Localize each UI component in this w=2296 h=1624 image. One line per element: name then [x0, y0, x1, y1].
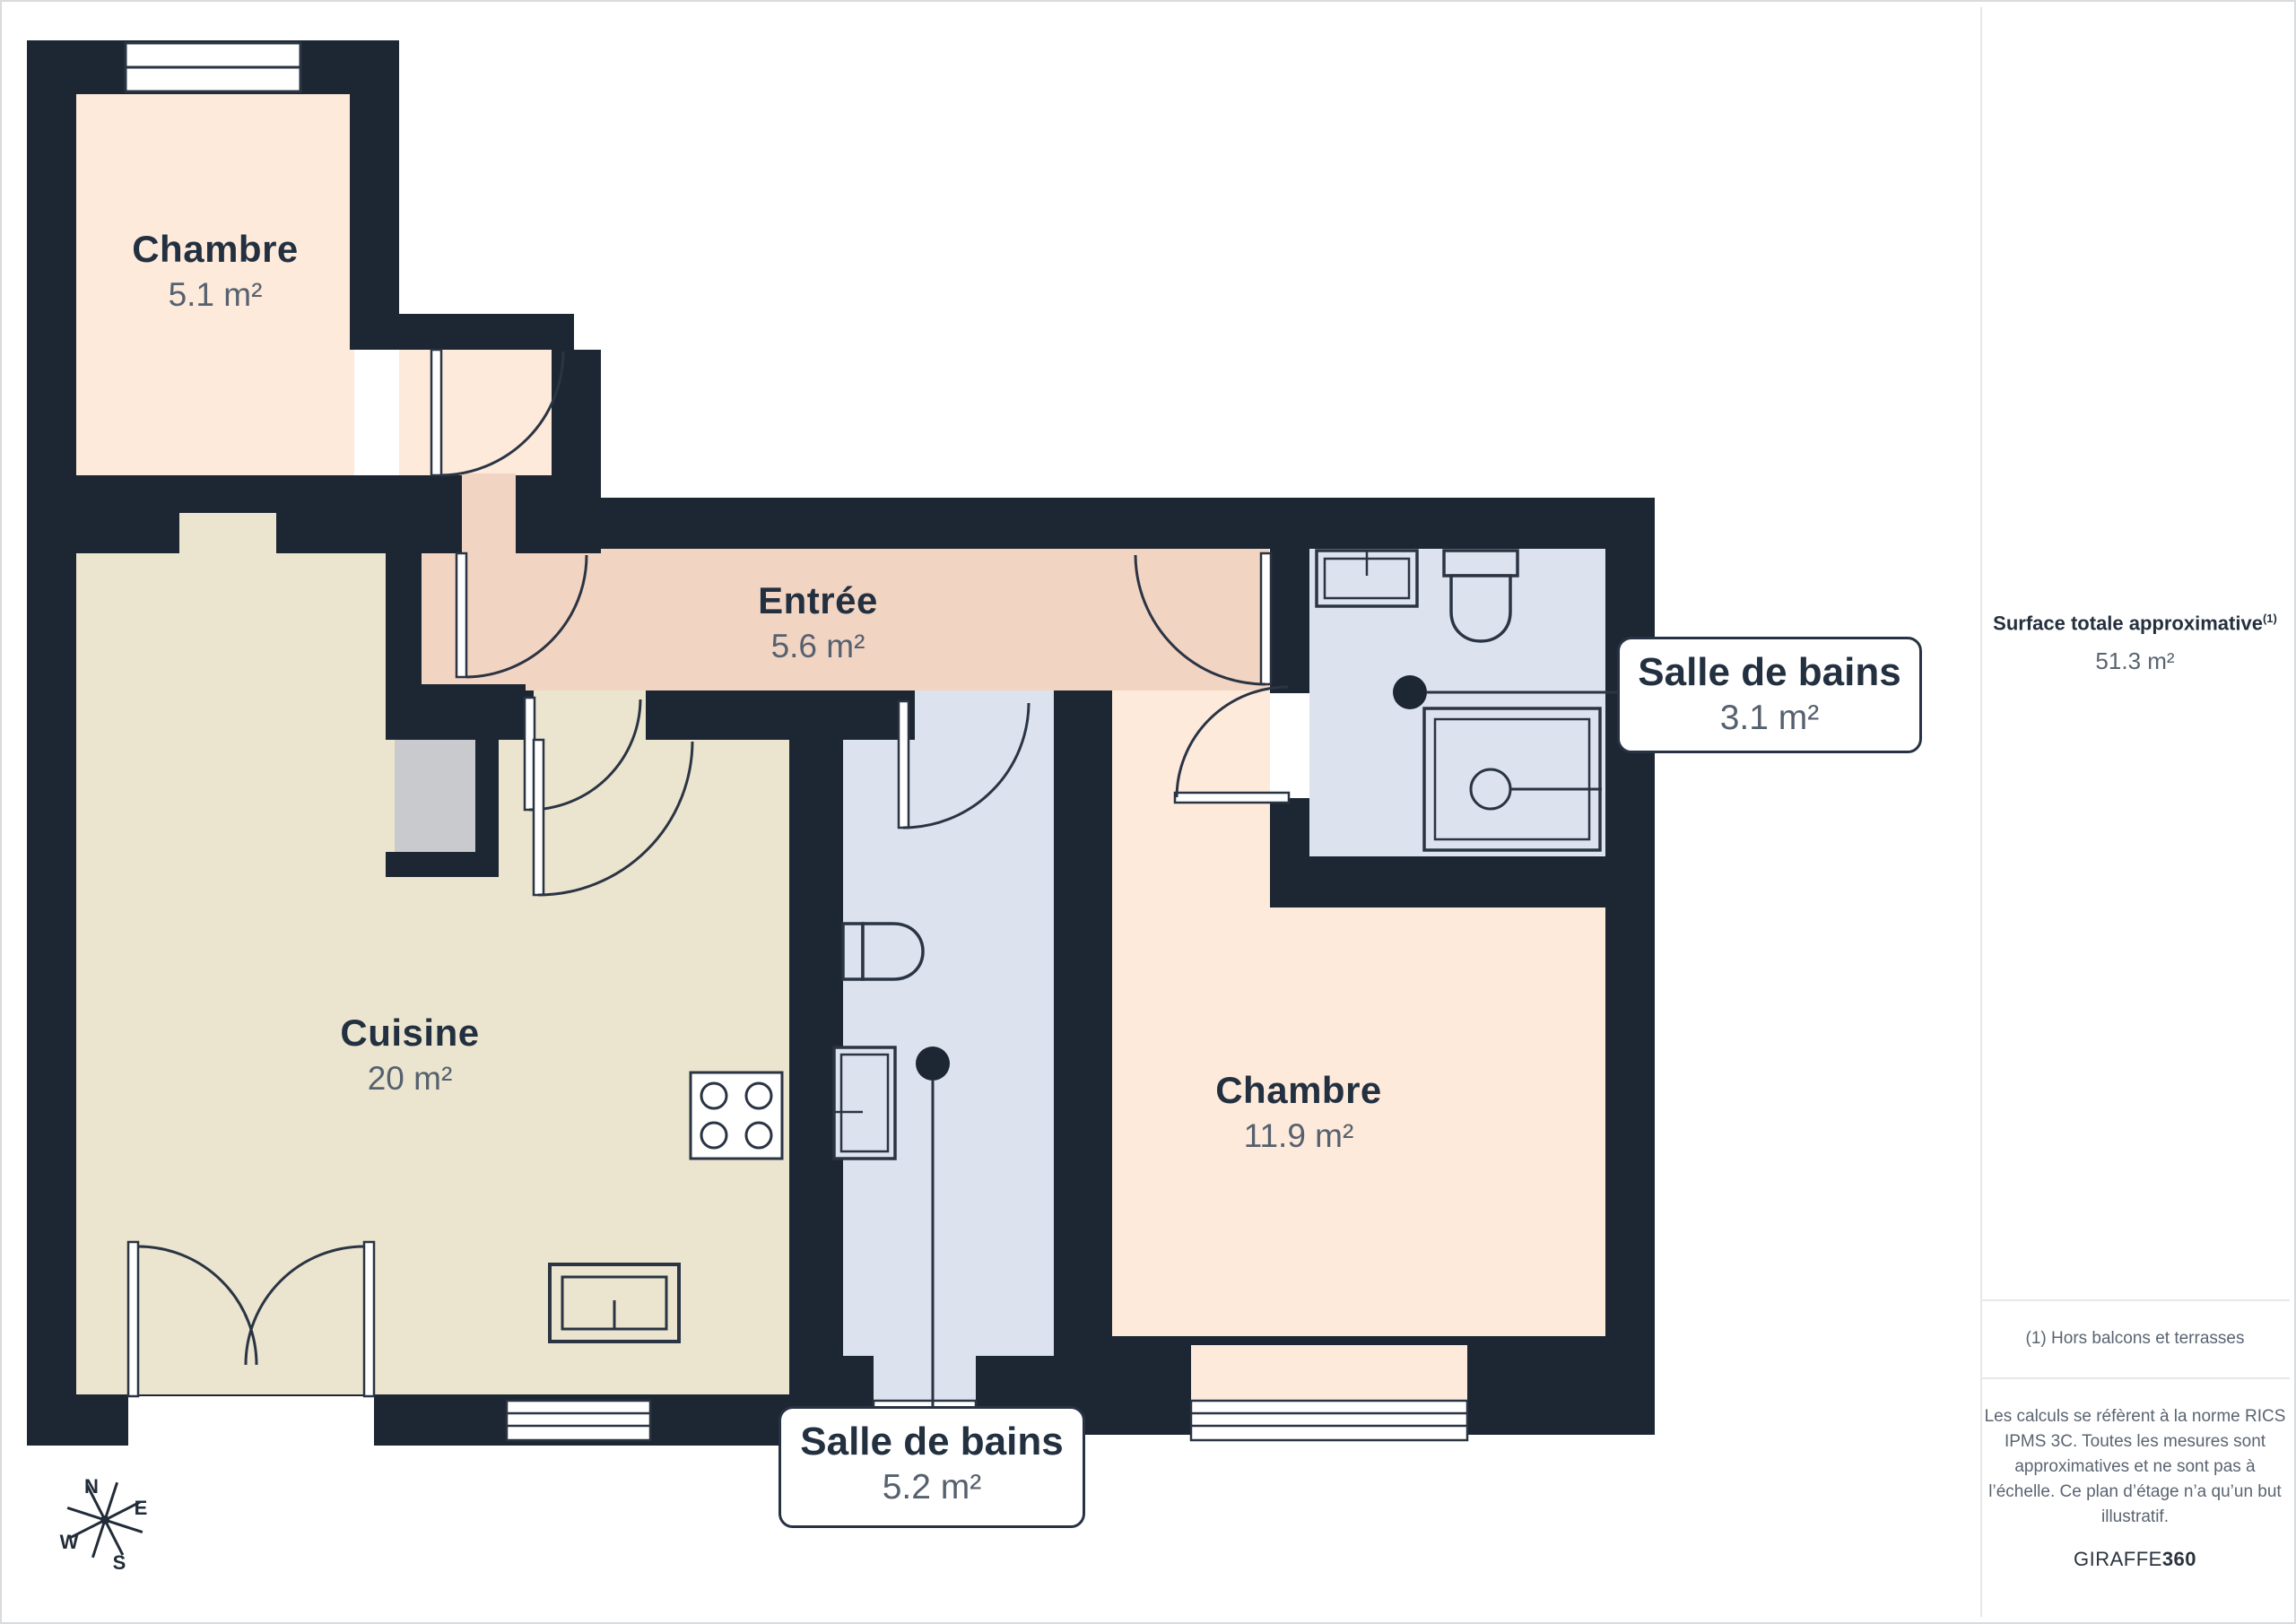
french-door-opening [128, 1396, 374, 1446]
bathroom2-floor [843, 690, 1054, 1356]
leader-dot [916, 1046, 950, 1081]
room-name: Chambre [1215, 1069, 1382, 1112]
bathroom-sink-icon [1317, 551, 1417, 606]
compass-north-label: N [84, 1475, 99, 1498]
room-area: 5.6 m² [758, 628, 878, 665]
surface-total-label: Surface totale approximative(1) [1980, 612, 2290, 635]
room-area: 5.1 m² [132, 276, 299, 314]
footnote-text: (1) Hors balcons et terrasses [1980, 1329, 2290, 1349]
bedroom1-window [126, 43, 300, 91]
brand-name: GIRAFFE [2074, 1548, 2162, 1570]
floorplan-drawing: N E S W [0, 0, 2296, 1624]
callout-name: Salle de bains [1620, 650, 1919, 695]
stove-icon [691, 1073, 782, 1159]
surface-total-value: 51.3 m² [1980, 647, 2290, 675]
room-label-bedroom2: Chambre 11.9 m² [1215, 1069, 1382, 1155]
bathroom2-sill [874, 1356, 976, 1401]
shower-icon [1424, 708, 1602, 850]
leader-dot [1393, 675, 1427, 709]
brand-suffix: 360 [2162, 1548, 2196, 1570]
surface-footnote-marker: (1) [2263, 612, 2277, 625]
room-label-kitchen: Cuisine 20 m² [340, 1012, 479, 1098]
room-name: Cuisine [340, 1012, 479, 1055]
callout-name: Salle de bains [781, 1420, 1083, 1464]
room-area: 20 m² [340, 1060, 479, 1098]
hall-strip-floor [462, 473, 516, 554]
floorplan-page: N E S W Chambre 5.1 m² Entrée 5.6 m² Cui… [0, 0, 2296, 1624]
compass-west-label: W [60, 1531, 79, 1553]
surface-total-block: Surface totale approximative(1) 51.3 m² [1980, 612, 2290, 675]
toilet-icon [1444, 551, 1518, 641]
room-name: Chambre [132, 228, 299, 271]
bedroom1-passage-floor [399, 350, 552, 477]
kitchen-window [507, 1401, 650, 1440]
brand-logo: GIRAFFE360 [1980, 1548, 2290, 1571]
disclaimer-text: Les calculs se réfèrent à la norme RICS … [1984, 1404, 2286, 1530]
callout-bathroom-right: Salle de bains 3.1 m² [1617, 637, 1922, 753]
kitchen-niche [179, 513, 276, 556]
sidebar-divider [1980, 7, 1982, 1617]
compass-east-label: E [135, 1497, 148, 1519]
room-name: Entrée [758, 579, 878, 622]
sidebar-rule-bottom [1982, 1377, 2290, 1379]
toilet-icon [843, 924, 923, 979]
bedroom2-window [1191, 1401, 1467, 1440]
room-area: 11.9 m² [1215, 1117, 1382, 1155]
bedroom2-sill [1191, 1345, 1467, 1401]
room-label-hall: Entrée 5.6 m² [758, 579, 878, 665]
room-label-bedroom1: Chambre 5.1 m² [132, 228, 299, 314]
callout-area: 5.2 m² [781, 1468, 1083, 1507]
sidebar-rule-top [1982, 1299, 2290, 1301]
callout-bathroom-middle: Salle de bains 5.2 m² [778, 1406, 1085, 1528]
callout-area: 3.1 m² [1620, 699, 1919, 738]
compass-south-label: S [113, 1551, 126, 1574]
bathroom-sink-icon [834, 1047, 895, 1159]
compass-rose-icon: N E S W [56, 1471, 155, 1574]
